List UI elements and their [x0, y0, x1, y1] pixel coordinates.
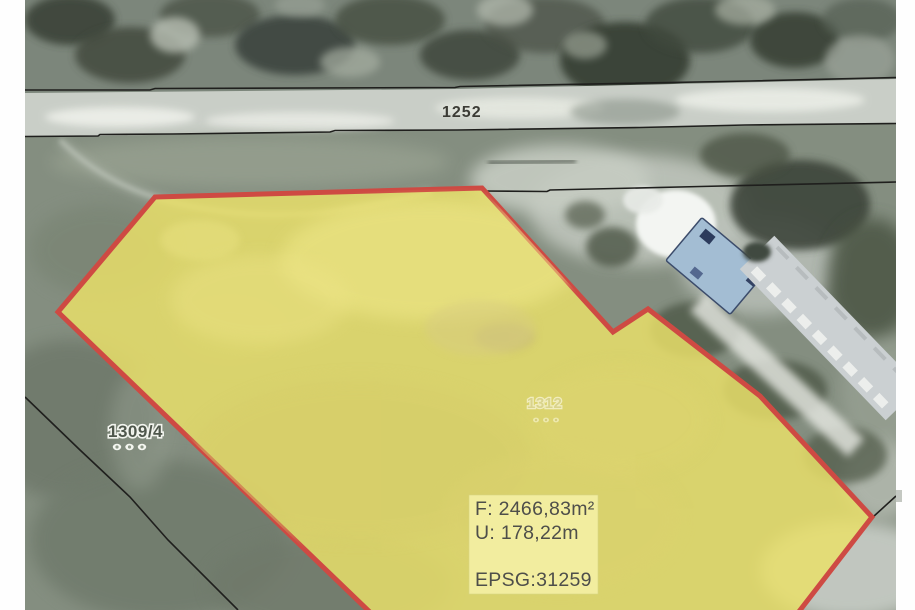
- neighbor-parcel-dots: [113, 444, 146, 450]
- epsg-code-value: EPSG:31259: [475, 569, 592, 591]
- scan-margin-right: [896, 0, 915, 610]
- parcel-perimeter-value: U: 178,22m: [475, 522, 579, 544]
- highlighted-parcel-label: 1312: [527, 395, 562, 412]
- highlighted-parcel-dots: [533, 418, 559, 423]
- hedge-line: [488, 161, 576, 163]
- cadastral-map: 1252 1309/4 1312: [0, 0, 915, 610]
- scan-margin-left: [0, 0, 25, 610]
- scan-artifact: [896, 490, 902, 502]
- road-parcel-label: 1252: [442, 104, 482, 121]
- neighbor-parcel-label: 1309/4: [108, 422, 163, 441]
- parcel-area-value: F: 2466,83m²: [475, 498, 595, 520]
- cadastral-map-page: 1252 1309/4 1312: [0, 0, 915, 610]
- info-box: F: 2466,83m² U: 178,22m EPSG:31259: [469, 495, 598, 594]
